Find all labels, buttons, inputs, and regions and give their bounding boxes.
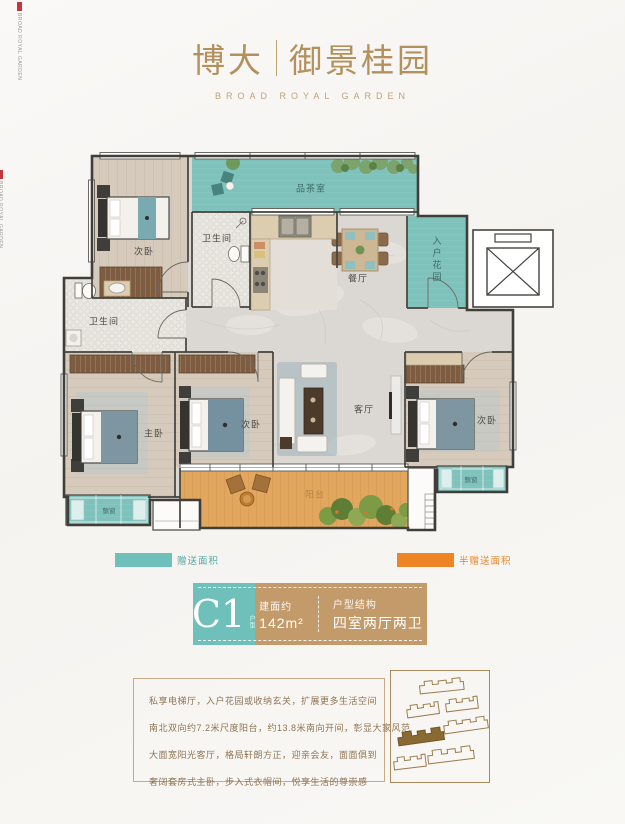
floor-plan: 次卧 卫生间 品茶室 餐厅 入户花园 卫生间 主卧 次卧 客厅 次卧 阳台 飘窗… [58, 138, 572, 550]
unit-structure-value: 四室两厅两卫 [333, 613, 423, 633]
unit-code: C1 [192, 595, 245, 633]
legend-gift-area: 赠送面积 [115, 553, 219, 567]
label-bathroom-top: 卫生间 [202, 232, 232, 245]
gift-area-label: 赠送面积 [177, 553, 219, 567]
brand-vertical-text: BROAD ROYAL GARDEN [0, 181, 3, 248]
header: 博大 御景桂园 BROAD ROYAL GARDEN [0, 34, 625, 101]
description-line: 大面宽阳光客厅，格局轩朗方正，迎亲会友，面面俱到 [149, 742, 369, 769]
legend-half-gift-area: 半赠送面积 [397, 553, 512, 567]
half-gift-area-label: 半赠送面积 [459, 553, 512, 567]
description-box: 私享电梯厅，入户花园或收纳玄关，扩展更多生活空间 南北双向约7.2米尺度阳台，约… [133, 678, 385, 782]
unit-structure-label: 户型结构 [333, 596, 423, 611]
label-living-room: 客厅 [354, 403, 374, 416]
title-divider [276, 40, 277, 76]
brand-red-mark [0, 170, 3, 179]
label-bathroom-left: 卫生间 [89, 315, 119, 328]
poster-page: BROAD ROYAL GARDEN BROAD ROYAL GARDEN 博大… [0, 0, 625, 824]
unit-area: 建面约 142m² [259, 598, 304, 631]
closet-strip [406, 353, 462, 365]
gift-area-swatch [115, 553, 172, 567]
badge-divider [318, 596, 319, 632]
label-tea-room: 品茶室 [296, 182, 326, 195]
corner-brand-side: BROAD ROYAL GARDEN [0, 170, 3, 248]
description-line: 南北双向约7.2米尺度阳台，约13.8米南向开间，彰显大家风范 [149, 715, 369, 742]
unit-info-panel: 建面约 142m² 户型结构 四室两厅两卫 [255, 583, 427, 645]
label-bedroom-right: 次卧 [477, 414, 497, 427]
label-bay-window-right: 飘窗 [465, 474, 478, 484]
half-gift-area-swatch [397, 553, 454, 567]
label-balcony: 阳台 [305, 488, 325, 501]
label-bay-window-left: 飘窗 [103, 505, 116, 515]
brand-red-mark [17, 2, 22, 11]
siteplan-svg [391, 671, 489, 782]
brand-subtitle: BROAD ROYAL GARDEN [0, 91, 625, 101]
brand-name-right: 御景桂园 [289, 34, 433, 82]
description-line: 奢阔套房式主卧，步入式衣帽间，悦享生活的尊崇感 [149, 769, 369, 796]
unit-area-label: 建面约 [259, 598, 304, 613]
brand-title: 博大 御景桂园 [0, 34, 625, 82]
unit-area-value: 142m² [259, 615, 304, 631]
siteplan-highlighted-building [397, 727, 444, 746]
description-line: 私享电梯厅，入户花园或收纳玄关，扩展更多生活空间 [149, 688, 369, 715]
label-dining: 餐厅 [348, 272, 368, 285]
siteplan-buildings [393, 677, 488, 770]
unit-code-panel: C1 户型 [193, 583, 255, 645]
siteplan-box [390, 670, 490, 783]
label-bedroom-mid: 次卧 [241, 418, 261, 431]
unit-structure: 户型结构 四室两厅两卫 [333, 596, 423, 633]
elevator [473, 230, 553, 307]
tv-console [389, 376, 401, 434]
label-bedroom-top: 次卧 [134, 245, 154, 258]
unit-badge: C1 户型 建面约 142m² 户型结构 四室两厅两卫 [193, 583, 427, 645]
label-master-bedroom: 主卧 [144, 427, 164, 440]
unit-code-suffix: 户型 [247, 615, 256, 629]
label-entry-garden: 入户花园 [431, 236, 444, 284]
brand-name-left: 博大 [192, 34, 264, 82]
